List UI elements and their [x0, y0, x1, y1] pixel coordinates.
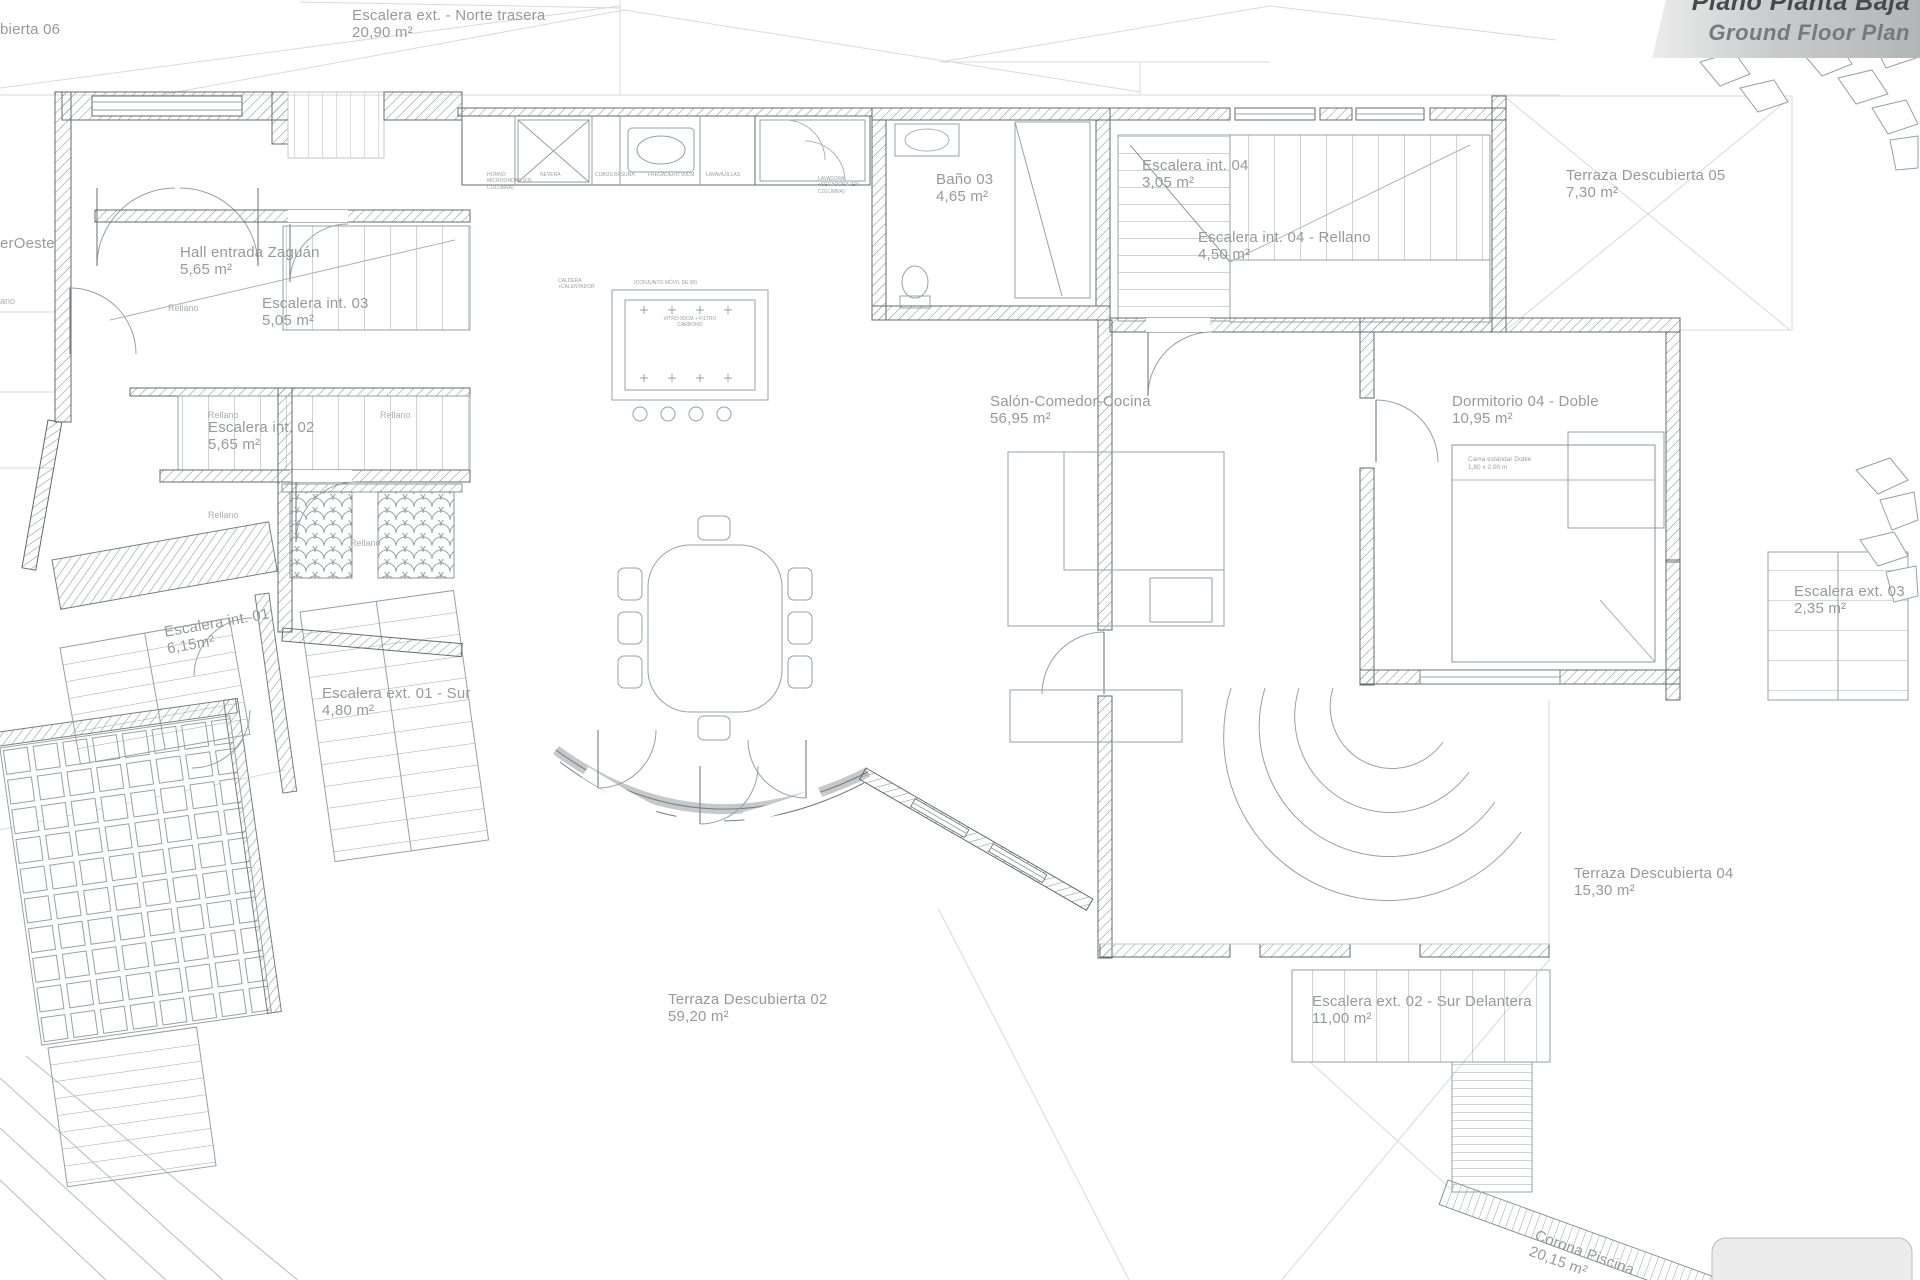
label-dormitorio-04: Dormitorio 04 - Doble10,95 m²: [1452, 394, 1599, 428]
label-edge-top-left: bierta 06: [0, 22, 60, 39]
title-en: Ground Floor Plan: [1652, 20, 1910, 46]
label-appliance-oven: HORNO MICROONDAS (EN COLUMNA): [487, 172, 533, 191]
bathroom-03: [872, 108, 1110, 320]
label-island-center: VITRO 90CM + FILTRO CARBONO: [660, 316, 720, 329]
label-bano-03: Baño 034,65 m²: [936, 172, 993, 206]
label-escalera-ext-01: Escalera ext. 01 - Sur4,80 m²: [322, 686, 471, 720]
label-salon-comedor-cocina: Salón-Comedor-Cocina56,95 m²: [990, 394, 1151, 428]
label-edge-mid-left: erOeste: [0, 236, 55, 253]
label-appliance-dishwasher: LAVAVAJILLAS: [706, 172, 740, 178]
terrace-04-steps: [1100, 688, 1549, 957]
stairs-ext-01: [300, 590, 489, 861]
dining-table: [618, 516, 812, 740]
label-escalera-int-03: Escalera int. 035,05 m²: [262, 296, 369, 330]
tile-boxes: [282, 484, 462, 578]
label-rellano-1: Rellano: [168, 303, 199, 313]
label-rellano-2: Rellano: [208, 410, 239, 420]
label-terraza-04: Terraza Descubierta 0415,30 m²: [1574, 866, 1733, 900]
label-bed: Cama estándar Doble1,80 x 2,00 m: [1468, 456, 1531, 473]
label-escalera-int-04: Escalera int. 043,05 m²: [1142, 158, 1249, 192]
label-escalera-ext-02: Escalera ext. 02 - Sur Delantera11,00 m²: [1312, 994, 1532, 1028]
label-escalera-int-02: Escalera int. 025,65 m²: [208, 420, 315, 454]
label-terraza-05: Terraza Descubierta 057,30 m²: [1566, 168, 1725, 202]
label-appliance-sink: FREGADERO 90CM: [648, 172, 694, 178]
entry-hall: [22, 92, 288, 570]
label-island-top: (CONJUNTO MÓVIL DE 90): [634, 280, 697, 286]
label-hall-entrada: Hall entrada Zaguán5,65 m²: [180, 245, 320, 279]
label-appliance-washer: LAVADORA +SECADORA (EN COLUMNA): [818, 176, 864, 195]
floor-plan-canvas: Plano Planta Baja Ground Floor Plan Esca…: [0, 0, 1920, 1280]
bedroom-04: [1360, 318, 1680, 700]
stairs-norte-trasera: [288, 92, 384, 158]
stairs-road: [48, 1027, 216, 1187]
pool-steps: [1452, 1062, 1532, 1192]
label-appliance-fridge: NEVERA: [540, 172, 561, 178]
label-escalera-ext-norte: Escalera ext. - Norte trasera20,90 m²: [352, 8, 545, 42]
label-rellano-5: Rellano: [350, 538, 381, 548]
pool-corner: [1712, 1238, 1912, 1280]
label-appliance-bins: CUBOS BASURA: [595, 172, 635, 178]
label-rellano-3: Rellano: [380, 410, 411, 420]
stone-edges: [1700, 8, 1918, 602]
label-edge-low-left: ano: [0, 296, 15, 306]
title-block: Plano Planta Baja Ground Floor Plan: [1652, 0, 1920, 58]
title-es: Plano Planta Baja: [1652, 0, 1910, 17]
label-escalera-ext-03: Escalera ext. 032,35 m²: [1794, 584, 1905, 618]
bay-window: [556, 730, 1093, 910]
label-rellano-4: Rellano: [208, 510, 239, 520]
label-island-left: CALDERA +CALENTADOR: [558, 278, 604, 291]
kitchen-island: [612, 290, 768, 421]
sofa-group: [1008, 452, 1224, 742]
label-escalera-int-04-rellano: Escalera int. 04 - Rellano4,50 m²: [1198, 230, 1371, 264]
wall-top-kitchen-left: [384, 92, 462, 120]
label-terraza-02: Terraza Descubierta 0259,20 m²: [668, 992, 827, 1026]
